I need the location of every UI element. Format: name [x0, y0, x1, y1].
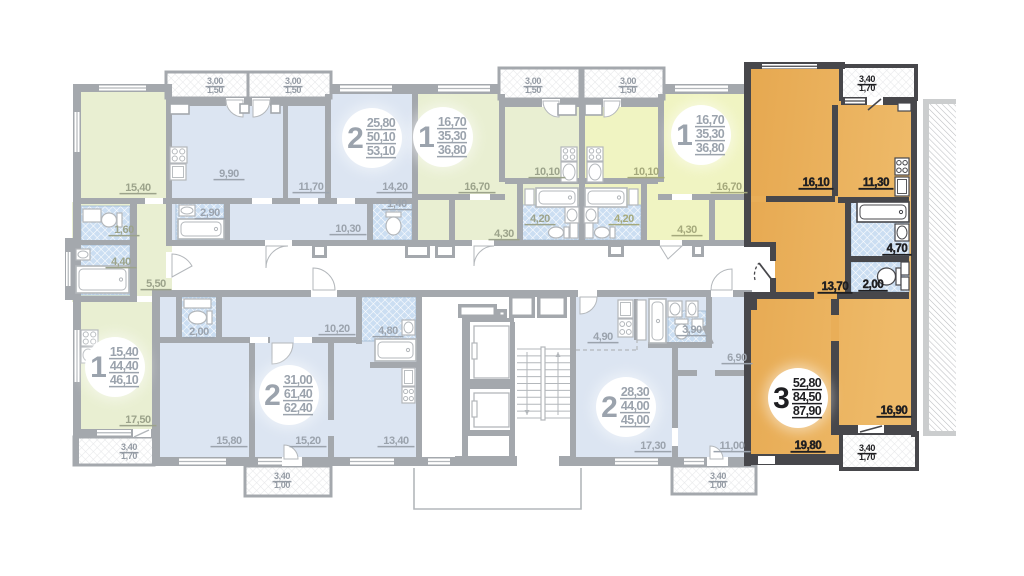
svg-text:19,80: 19,80 — [795, 440, 822, 452]
svg-text:2: 2 — [601, 391, 617, 424]
svg-text:11,00: 11,00 — [720, 440, 745, 452]
svg-text:1,50: 1,50 — [620, 85, 636, 95]
svg-text:13,40: 13,40 — [383, 435, 409, 447]
svg-text:1,70: 1,70 — [859, 452, 875, 462]
svg-text:16,70: 16,70 — [696, 113, 725, 127]
svg-text:2,90: 2,90 — [200, 207, 220, 219]
svg-text:4,20: 4,20 — [614, 213, 634, 225]
svg-text:6,90: 6,90 — [727, 352, 747, 364]
svg-text:10,10: 10,10 — [534, 166, 560, 178]
svg-text:3,90: 3,90 — [682, 324, 702, 336]
svg-text:1,70: 1,70 — [121, 451, 137, 461]
svg-text:1: 1 — [418, 121, 434, 154]
svg-text:52,80: 52,80 — [793, 376, 822, 390]
svg-text:10,20: 10,20 — [324, 323, 350, 335]
svg-text:4,70: 4,70 — [887, 243, 908, 255]
svg-text:4,40: 4,40 — [111, 256, 131, 268]
svg-text:1,00: 1,00 — [710, 480, 726, 490]
svg-text:1,50: 1,50 — [207, 85, 223, 95]
svg-text:1,60: 1,60 — [114, 224, 134, 236]
svg-text:2: 2 — [264, 379, 280, 412]
svg-text:36,80: 36,80 — [438, 143, 467, 157]
svg-text:16,70: 16,70 — [438, 115, 467, 129]
svg-text:15,80: 15,80 — [216, 435, 242, 447]
svg-text:1,50: 1,50 — [285, 85, 301, 95]
svg-text:5,50: 5,50 — [146, 278, 166, 290]
svg-text:35,30: 35,30 — [438, 129, 467, 143]
svg-text:4,20: 4,20 — [530, 213, 550, 225]
svg-text:1: 1 — [90, 351, 106, 384]
svg-text:16,70: 16,70 — [464, 181, 490, 193]
svg-text:11,70: 11,70 — [299, 181, 324, 193]
svg-text:1,50: 1,50 — [525, 85, 541, 95]
svg-text:16,70: 16,70 — [716, 181, 742, 193]
svg-text:50,10: 50,10 — [367, 130, 396, 144]
svg-text:53,10: 53,10 — [367, 144, 396, 158]
svg-text:44,40: 44,40 — [110, 359, 139, 373]
svg-text:17,30: 17,30 — [640, 440, 666, 452]
svg-text:61,40: 61,40 — [284, 387, 313, 401]
svg-text:9,90: 9,90 — [219, 168, 239, 180]
svg-text:1,00: 1,00 — [274, 480, 290, 490]
svg-text:2: 2 — [347, 122, 363, 155]
svg-text:31,00: 31,00 — [284, 373, 313, 387]
svg-text:15,40: 15,40 — [110, 345, 139, 359]
svg-text:3: 3 — [773, 382, 789, 415]
svg-text:4,80: 4,80 — [378, 325, 398, 337]
svg-text:13,70: 13,70 — [822, 281, 849, 293]
svg-text:15,40: 15,40 — [125, 182, 151, 194]
svg-text:16,10: 16,10 — [803, 177, 830, 189]
svg-text:4,90: 4,90 — [593, 331, 613, 343]
svg-text:1,70: 1,70 — [859, 83, 875, 93]
svg-text:2,00: 2,00 — [189, 326, 209, 338]
svg-text:11,30: 11,30 — [863, 177, 889, 189]
svg-text:15,20: 15,20 — [295, 435, 321, 447]
svg-text:2,00: 2,00 — [863, 279, 884, 291]
svg-text:87,90: 87,90 — [793, 404, 822, 418]
svg-text:14,20: 14,20 — [382, 181, 408, 193]
svg-text:16,90: 16,90 — [881, 405, 908, 417]
svg-text:10,30: 10,30 — [335, 223, 361, 235]
svg-text:1: 1 — [676, 119, 692, 152]
svg-text:1,40: 1,40 — [387, 198, 407, 210]
svg-text:36,80: 36,80 — [696, 141, 725, 155]
svg-text:46,10: 46,10 — [110, 373, 139, 387]
svg-text:84,50: 84,50 — [793, 390, 822, 404]
svg-text:62,40: 62,40 — [284, 401, 313, 415]
svg-text:35,30: 35,30 — [696, 127, 725, 141]
svg-text:10,10: 10,10 — [633, 166, 659, 178]
svg-text:4,30: 4,30 — [494, 228, 514, 240]
svg-text:25,80: 25,80 — [367, 116, 396, 130]
svg-text:28,30: 28,30 — [621, 385, 650, 399]
svg-text:44,00: 44,00 — [621, 399, 650, 413]
svg-text:45,00: 45,00 — [621, 413, 650, 427]
svg-text:4,30: 4,30 — [677, 224, 697, 236]
svg-text:17,50: 17,50 — [125, 414, 151, 426]
